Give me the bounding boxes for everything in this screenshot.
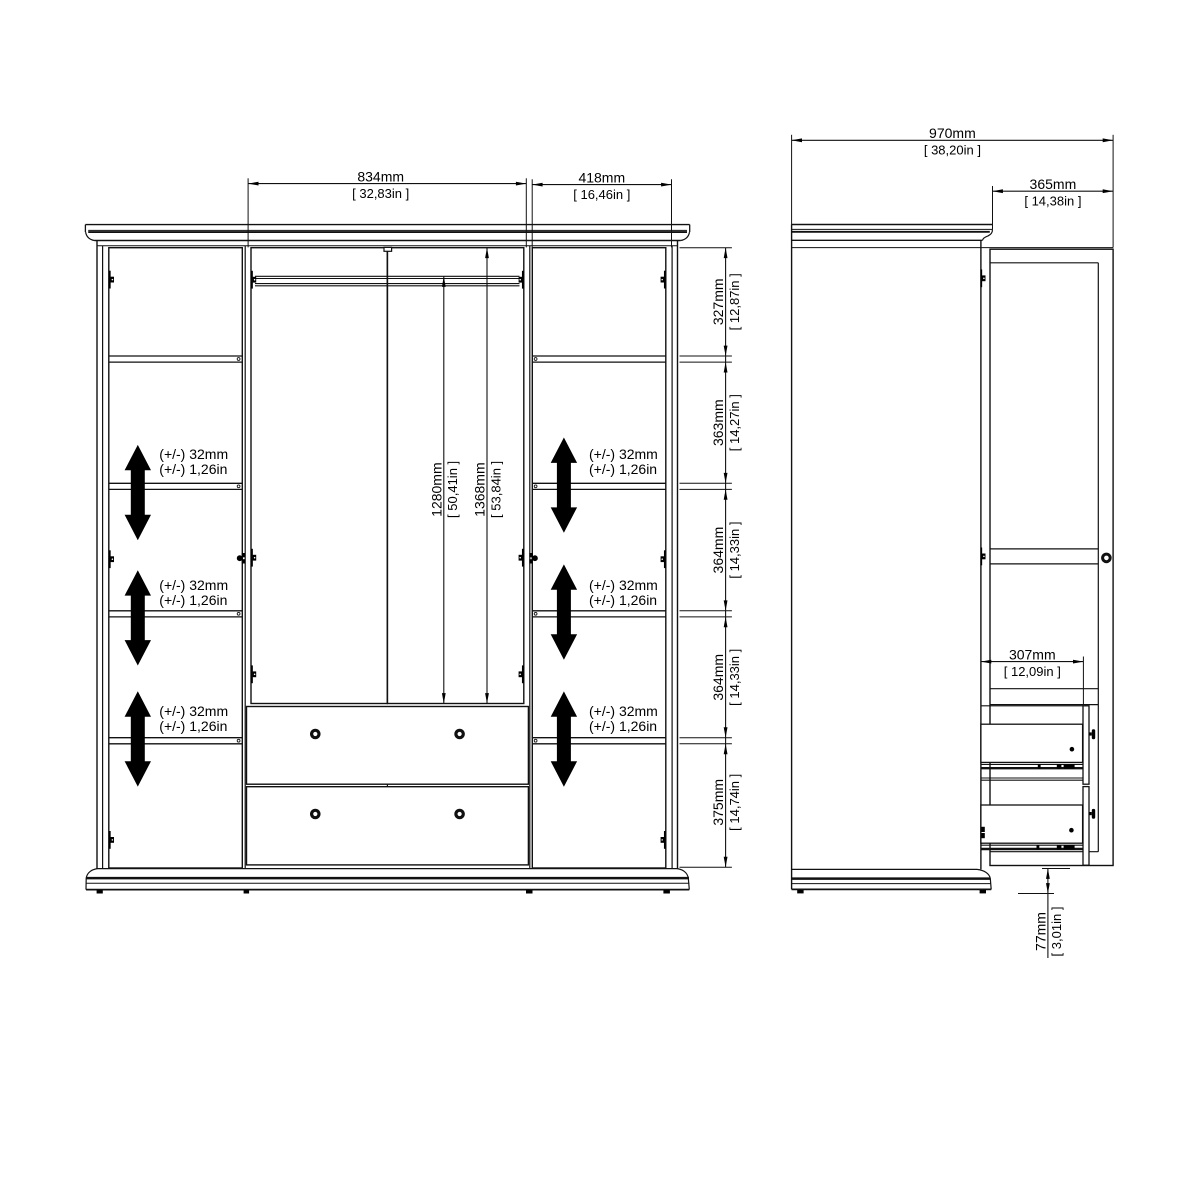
svg-text:[ 14,27in ]: [ 14,27in ]	[727, 394, 742, 451]
svg-text:365mm: 365mm	[1030, 176, 1077, 192]
svg-text:[ 53,84in ]: [ 53,84in ]	[488, 461, 503, 518]
svg-text:[ 3,01in ]: [ 3,01in ]	[1049, 907, 1064, 957]
svg-text:970mm: 970mm	[929, 125, 976, 141]
svg-text:(+/-) 1,26in: (+/-) 1,26in	[589, 461, 657, 477]
svg-text:[ 14,33in ]: [ 14,33in ]	[727, 649, 742, 706]
svg-text:(+/-) 32mm: (+/-) 32mm	[589, 703, 658, 719]
svg-text:(+/-) 1,26in: (+/-) 1,26in	[589, 592, 657, 608]
svg-text:(+/-) 32mm: (+/-) 32mm	[159, 577, 228, 593]
svg-text:327mm: 327mm	[710, 278, 726, 325]
svg-text:[ 38,20in ]: [ 38,20in ]	[924, 143, 981, 158]
svg-text:363mm: 363mm	[710, 399, 726, 446]
svg-text:77mm: 77mm	[1033, 912, 1049, 951]
svg-text:307mm: 307mm	[1009, 646, 1056, 662]
svg-text:(+/-) 32mm: (+/-) 32mm	[589, 577, 658, 593]
svg-text:[ 32,83in ]: [ 32,83in ]	[352, 186, 409, 201]
svg-text:(+/-) 1,26in: (+/-) 1,26in	[589, 718, 657, 734]
svg-text:[ 14,38in ]: [ 14,38in ]	[1024, 193, 1081, 208]
svg-text:[ 50,41in ]: [ 50,41in ]	[445, 461, 460, 518]
svg-text:1280mm: 1280mm	[429, 462, 445, 516]
svg-text:[ 12,09in ]: [ 12,09in ]	[1004, 664, 1061, 679]
svg-text:[ 14,33in ]: [ 14,33in ]	[727, 522, 742, 579]
svg-text:(+/-) 1,26in: (+/-) 1,26in	[159, 718, 227, 734]
svg-text:364mm: 364mm	[710, 654, 726, 701]
svg-text:(+/-) 32mm: (+/-) 32mm	[159, 703, 228, 719]
svg-text:364mm: 364mm	[710, 527, 726, 574]
svg-text:(+/-) 32mm: (+/-) 32mm	[159, 446, 228, 462]
svg-text:(+/-) 1,26in: (+/-) 1,26in	[159, 592, 227, 608]
svg-text:[ 16,46in ]: [ 16,46in ]	[573, 187, 630, 202]
svg-text:(+/-) 32mm: (+/-) 32mm	[589, 446, 658, 462]
svg-text:[ 14,74in ]: [ 14,74in ]	[727, 774, 742, 831]
svg-text:834mm: 834mm	[357, 168, 404, 184]
svg-text:418mm: 418mm	[578, 169, 625, 185]
svg-text:1368mm: 1368mm	[472, 462, 488, 516]
svg-text:[ 12,87in ]: [ 12,87in ]	[727, 273, 742, 330]
svg-text:(+/-) 1,26in: (+/-) 1,26in	[159, 461, 227, 477]
svg-text:375mm: 375mm	[710, 779, 726, 826]
